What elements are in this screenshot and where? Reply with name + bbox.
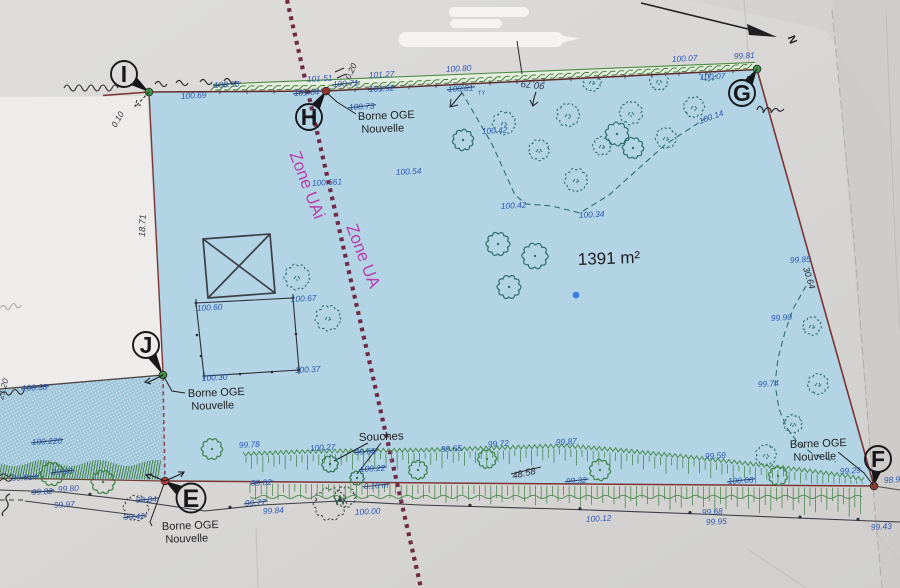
- svg-text:E: E: [183, 485, 200, 513]
- svg-text:98.9: 98.9: [884, 474, 900, 485]
- svg-text:100.42: 100.42: [482, 125, 508, 136]
- svg-text:Nouvelle: Nouvelle: [793, 450, 836, 463]
- svg-text:100.30: 100.30: [202, 372, 228, 383]
- svg-text:100.00: 100.00: [355, 506, 381, 517]
- svg-text:99.43: 99.43: [871, 521, 893, 532]
- svg-text:Borne OGE: Borne OGE: [358, 109, 415, 123]
- svg-text:99.78: 99.78: [239, 439, 261, 450]
- svg-text:99.97: 99.97: [54, 499, 76, 510]
- svg-text:100.60: 100.60: [197, 302, 223, 313]
- svg-text:99.65: 99.65: [441, 443, 463, 454]
- svg-text:100.07: 100.07: [700, 71, 726, 82]
- svg-text:Nouvelle: Nouvelle: [361, 122, 404, 135]
- svg-text:J: J: [140, 332, 153, 358]
- svg-text:100.42: 100.42: [501, 200, 527, 211]
- svg-text:99.80: 99.80: [58, 483, 80, 494]
- svg-text:18.71: 18.71: [137, 214, 148, 237]
- svg-text:100.12: 100.12: [586, 513, 612, 524]
- svg-text:99.90: 99.90: [771, 312, 793, 323]
- svg-text:99.74: 99.74: [758, 378, 780, 389]
- svg-text:100.69: 100.69: [181, 90, 207, 101]
- svg-text:H: H: [301, 104, 318, 130]
- svg-text:99.59: 99.59: [705, 450, 727, 461]
- svg-text:100.37: 100.37: [295, 364, 321, 375]
- svg-text:99.81: 99.81: [734, 50, 755, 61]
- svg-text:100.07: 100.07: [672, 53, 698, 64]
- svg-text:Nouvelle: Nouvelle: [191, 399, 234, 412]
- svg-text:Nouvelle: Nouvelle: [165, 532, 208, 545]
- svg-text:101.27: 101.27: [369, 69, 395, 80]
- svg-text:99.95: 99.95: [706, 516, 728, 527]
- svg-text:100.67: 100.67: [291, 293, 317, 304]
- svg-text:TY: TY: [478, 91, 486, 97]
- svg-text:100.27: 100.27: [310, 442, 336, 453]
- svg-text:Borne OGE: Borne OGE: [162, 519, 219, 533]
- svg-text:100.80: 100.80: [446, 63, 472, 74]
- svg-text:99.29: 99.29: [840, 465, 862, 476]
- svg-text:Borne OGE: Borne OGE: [790, 437, 847, 451]
- svg-text:I: I: [121, 61, 127, 87]
- svg-text:100.34: 100.34: [579, 209, 605, 220]
- svg-text:99.72: 99.72: [488, 438, 510, 449]
- svg-text:99.87: 99.87: [556, 436, 578, 447]
- svg-text:G: G: [733, 80, 751, 106]
- svg-text:Borne OGE: Borne OGE: [188, 386, 245, 400]
- svg-text:1391 m²: 1391 m²: [577, 248, 640, 269]
- svg-text:F: F: [871, 446, 885, 472]
- svg-text:100.54: 100.54: [396, 166, 422, 177]
- svg-text:99.85: 99.85: [790, 254, 812, 265]
- svg-text:101.51: 101.51: [307, 73, 333, 84]
- svg-text:Souches: Souches: [359, 430, 404, 444]
- svg-text:100.661: 100.661: [312, 176, 343, 188]
